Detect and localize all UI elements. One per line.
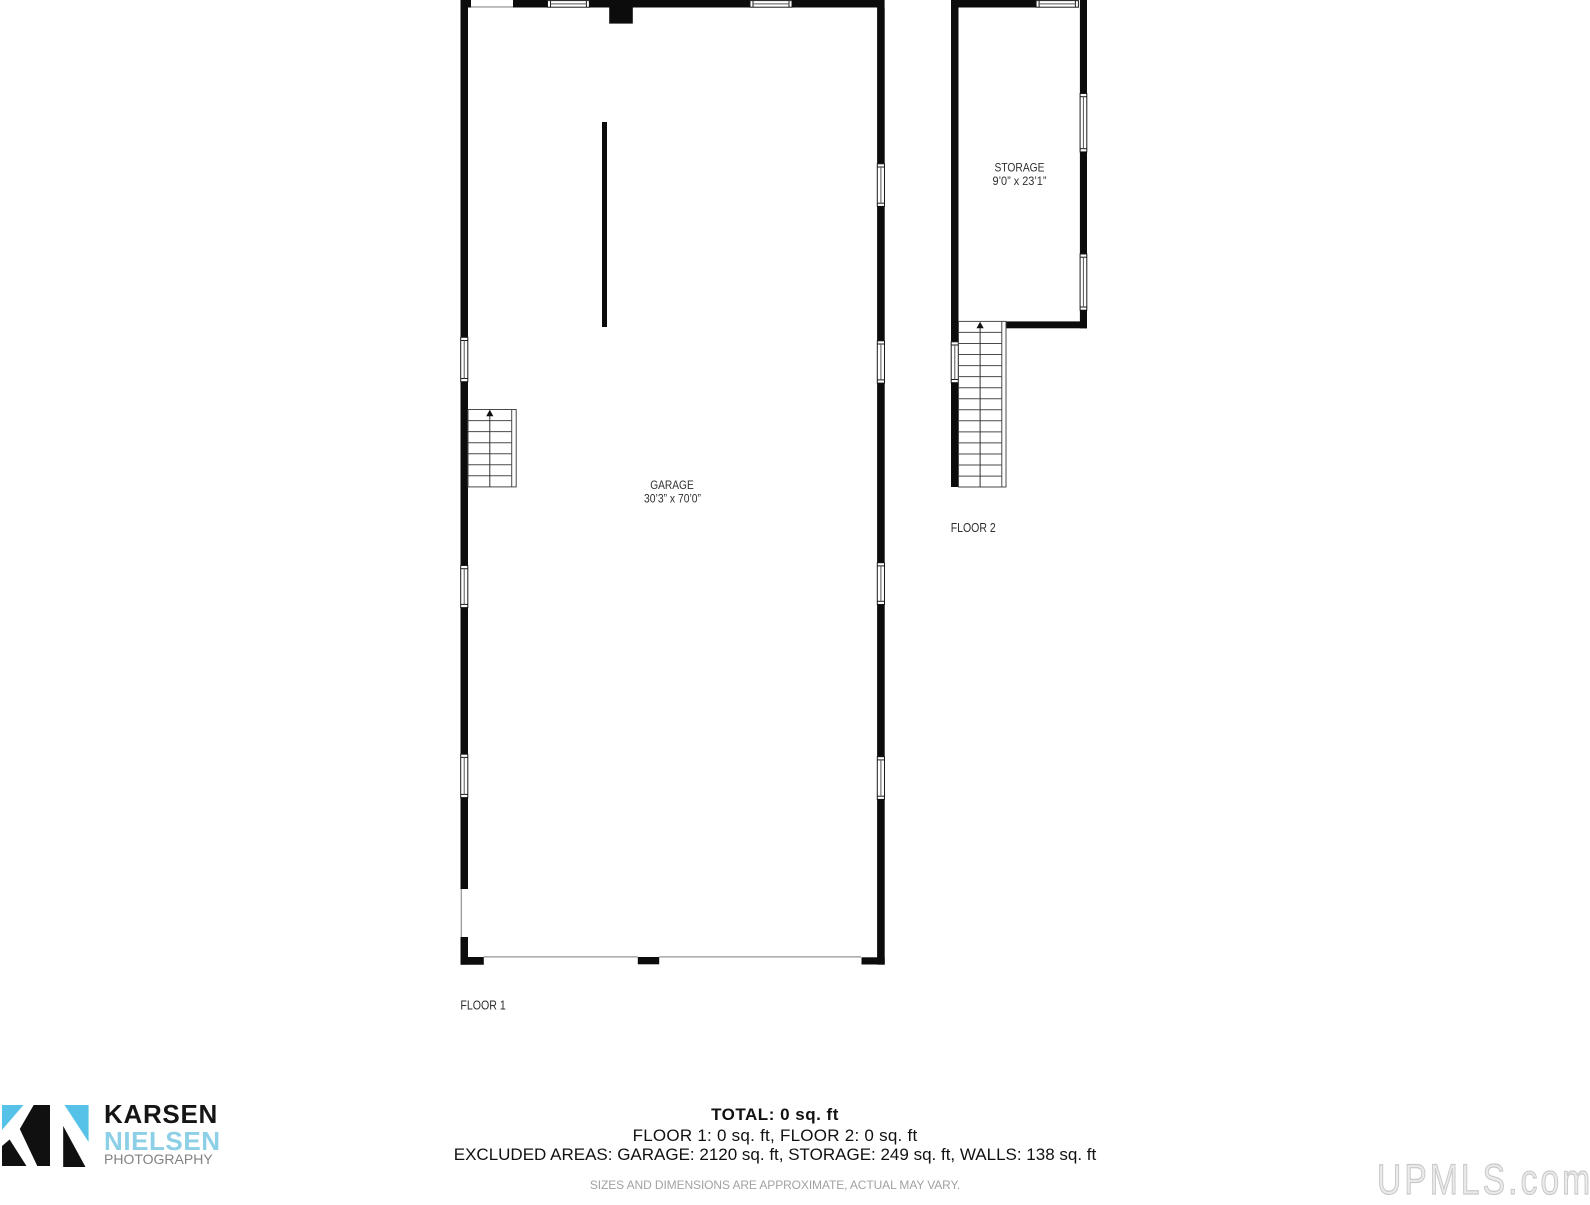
svg-text:STORAGE: STORAGE bbox=[995, 161, 1045, 175]
svg-text:GARAGE: GARAGE bbox=[650, 478, 694, 492]
svg-text:9’0” x 23’1”: 9’0” x 23’1” bbox=[993, 174, 1047, 188]
svg-text:30’3” x 70’0”: 30’3” x 70’0” bbox=[644, 491, 701, 505]
svg-text:FLOOR 1: FLOOR 1 bbox=[460, 998, 505, 1013]
svg-text:FLOOR 2: FLOOR 2 bbox=[951, 520, 996, 535]
